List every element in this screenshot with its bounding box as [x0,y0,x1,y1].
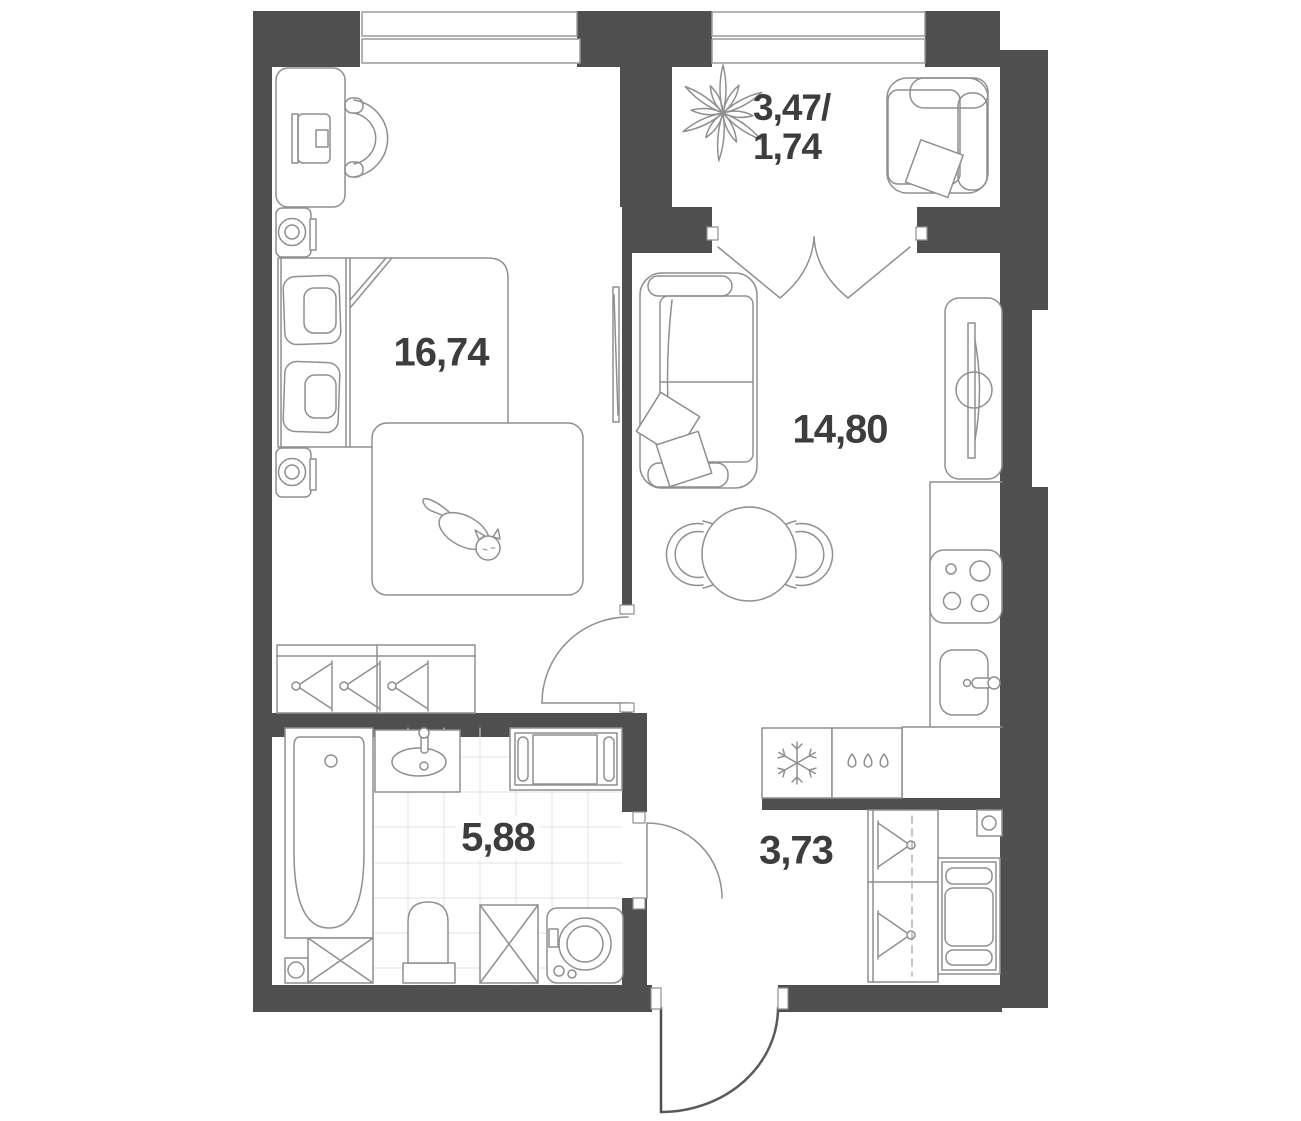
room-label-bedroom: 16,74 [393,331,488,376]
room-label-hallway: 3,73 [759,829,833,874]
kitchen-sink [940,650,1000,715]
tv-bedroom [613,287,619,422]
desk-chair [345,98,388,177]
entrance-door [661,1008,778,1112]
toilet [403,902,455,983]
room-label-bathroom: 5,88 [456,816,540,861]
desk [276,68,345,207]
balcony-furniture [682,65,988,197]
bedroom-window [362,12,580,63]
fridge [762,728,832,798]
bathroom-cabinet [510,728,622,790]
floorplan-page: 16,74 14,80 5,88 3,73 3,47/ 1,74 [0,0,1301,1121]
storage-box [480,905,538,983]
shoe-box [977,810,1002,836]
bathroom-door [647,823,722,898]
stove [930,550,1002,623]
floor-drain [285,958,308,983]
hallway-furniture [868,810,1002,982]
closet [277,645,475,713]
balcony-area-counted: 1,74 [753,127,830,166]
floorplan-drawing [0,0,1301,1121]
bathroom-fixtures [285,728,623,983]
bedroom-door [542,617,628,703]
balcony-window [712,12,925,63]
room-label-balcony: 3,47/ 1,74 [753,88,830,166]
hall-cabinet [938,858,1000,974]
bedroom-furniture [276,68,619,713]
laundry-box [308,938,373,983]
vanity-sink [375,728,460,792]
monitor-stand [316,130,328,147]
kitchen-counter [902,482,1002,798]
bathtub [285,728,373,938]
nightstand-top [276,208,316,257]
plant-icon [682,65,763,161]
dining-table [702,507,796,601]
kitchen-unit [832,728,902,798]
room-label-living-kitchen: 14,80 [792,408,887,453]
balcony-area-total: 3,47/ [753,88,830,127]
hall-wardrobe [868,810,938,982]
washing-machine [547,908,623,983]
tv-console [945,298,1002,479]
sofa [636,273,757,488]
rug [372,423,583,595]
wall-niche [1032,310,1048,487]
living-kitchen-furniture [636,273,1002,798]
nightstand-bottom [276,448,316,497]
armchair [887,78,988,197]
